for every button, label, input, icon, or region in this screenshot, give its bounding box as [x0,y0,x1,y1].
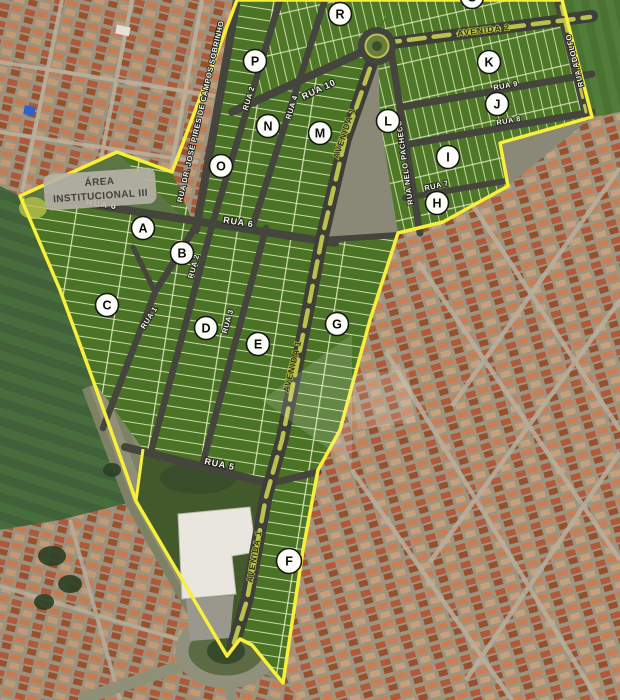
svg-text:H: H [432,196,441,210]
block-marker-g: G [326,313,349,336]
svg-text:G: G [332,317,342,331]
block-marker-n: N [257,115,280,138]
svg-text:C: C [102,298,111,312]
svg-text:A: A [138,221,147,235]
svg-text:L: L [384,114,392,128]
svg-text:P: P [251,54,259,68]
svg-text:I: I [446,150,449,164]
block-marker-r: R [329,3,352,26]
block-marker-l: L [377,110,400,133]
svg-text:K: K [484,55,493,69]
block-marker-d: D [195,317,218,340]
block-marker-a: A [132,217,155,240]
subdivision-plan-map: RUA 10 AVENIDA 2 RUA 9 RUA 8 RUA ADOLFO … [0,0,620,700]
svg-text:B: B [177,246,186,260]
svg-text:D: D [201,321,210,335]
warehouse-annex [186,595,234,641]
svg-text:F: F [285,554,293,568]
svg-text:R: R [335,7,344,21]
svg-text:N: N [263,119,272,133]
block-marker-o: O [210,155,233,178]
svg-text:M: M [315,126,325,140]
svg-text:O: O [216,159,226,173]
svg-text:S: S [468,0,476,4]
block-marker-p: P [244,50,267,73]
block-marker-f: F [277,549,302,574]
blue-pool [23,105,35,116]
block-marker-h: H [426,192,449,215]
block-marker-c: C [96,294,119,317]
block-marker-j: J [486,93,509,116]
block-marker-k: K [478,51,501,74]
svg-text:E: E [254,337,262,351]
block-marker-e: E [247,333,270,356]
block-marker-m: M [309,122,332,145]
block-marker-b: B [171,242,194,265]
svg-text:J: J [494,97,501,111]
top-roundabout [358,27,396,65]
block-marker-i: I [437,146,460,169]
